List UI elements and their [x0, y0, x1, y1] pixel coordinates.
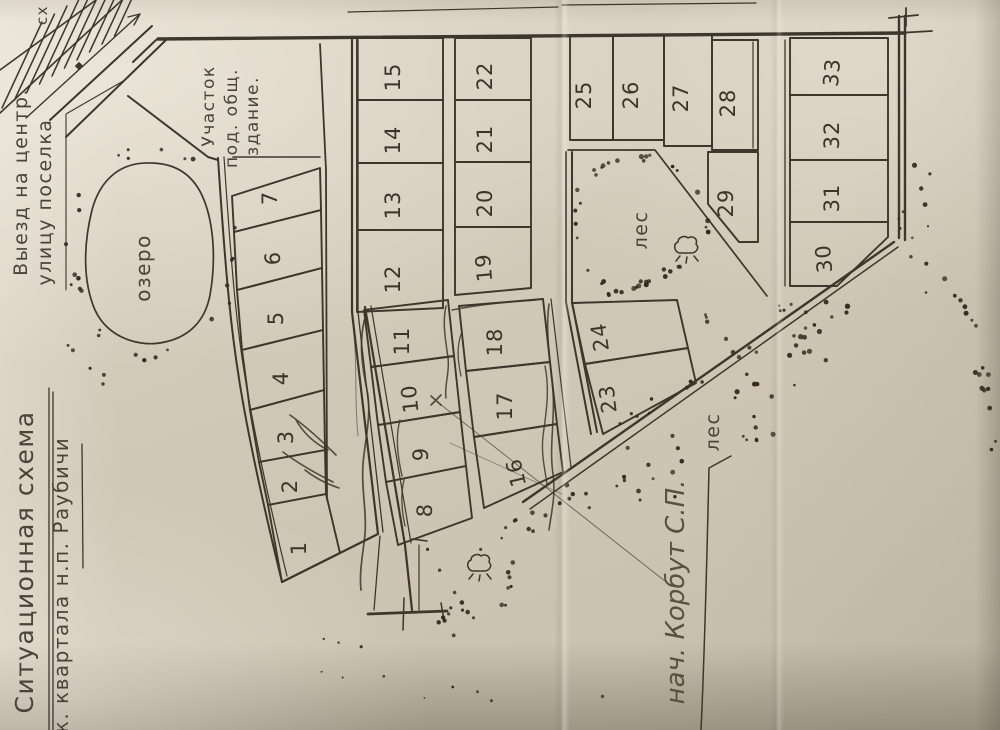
plot-8-number: 8	[413, 503, 437, 517]
plot-9-number: 9	[409, 447, 433, 461]
plot-20-number: 20	[473, 189, 497, 218]
plot-11-number: 11	[390, 327, 414, 356]
plot-25-number: 25	[572, 81, 596, 110]
plot-30-number: 30	[811, 243, 837, 274]
plot-1-boundary	[268, 494, 340, 582]
plot-26-number: 26	[619, 81, 643, 110]
tree-symbol-road-end	[468, 555, 491, 581]
exit-label-leader	[66, 80, 125, 290]
scanned-site-plan-photo: 1234567891011121314151617181920212223242…	[0, 0, 1000, 730]
boundary-top-left-seg	[133, 40, 156, 62]
plot-21-number: 21	[473, 125, 497, 154]
plot-32-number: 32	[820, 121, 844, 150]
title-line1: Ситуационная схема	[10, 410, 39, 713]
plot-6-number: 6	[261, 251, 285, 265]
forest-label-upper: лес	[630, 211, 652, 250]
plot-4-number: 4	[269, 371, 293, 385]
public-building-label-line2: под. общ.	[222, 68, 242, 168]
plot-29-number: 29	[714, 189, 738, 218]
plot-23-number: 23	[594, 383, 621, 414]
street-dead-end-stub	[374, 536, 380, 610]
forest-label-lower: лес	[702, 413, 724, 452]
plot-24-number: 24	[586, 321, 614, 353]
signature-label: нач. Корбут С.П.	[661, 480, 691, 705]
plot-22-number: 22	[473, 62, 497, 91]
edge-fragment-label: сх	[33, 5, 51, 25]
main-road-top-outer-line	[348, 3, 756, 12]
plot-15-number: 15	[381, 63, 405, 92]
plot-13-number: 13	[381, 191, 405, 220]
site-plan-map: 1234567891011121314151617181920212223242…	[0, 0, 1000, 730]
plot-33-number: 33	[819, 57, 845, 88]
plot-28-number: 28	[716, 89, 740, 118]
lake-label: озеро	[131, 234, 155, 302]
plot-1-number: 1	[287, 541, 311, 555]
plot-7-number: 7	[258, 191, 282, 205]
plot-parcels: 1234567891011121314151617181920212223242…	[232, 35, 888, 582]
exit-road-label-line2: улицу поселка	[34, 119, 56, 286]
road-diagonal-second-line	[530, 247, 898, 509]
plot-14-number: 14	[381, 126, 405, 155]
plot-19-number: 19	[471, 252, 497, 283]
plot-12-number: 12	[381, 265, 405, 294]
plot-18-number: 18	[483, 328, 507, 357]
exit-road-label-line1: Выезд на центр.	[10, 88, 32, 276]
public-building-label-line1: Участок	[199, 65, 219, 146]
street-dead-end-bar	[368, 611, 447, 614]
public-building-label-line3: здание.	[243, 76, 263, 156]
title-line2: ж. квартала н.п. Раубичи	[49, 437, 73, 730]
plot-5-number: 5	[264, 311, 288, 325]
plot-31-number: 31	[820, 184, 844, 213]
pen-mark-plot-18-left	[458, 332, 462, 376]
plot-17-number: 17	[493, 392, 517, 421]
tree-symbol-forest	[675, 237, 698, 263]
plot-10-number: 10	[397, 383, 424, 414]
plot-2-number: 2	[278, 479, 302, 493]
plot-30-boundary	[790, 222, 888, 286]
embankment-diamond-mark	[75, 62, 83, 70]
signature-underline	[701, 456, 731, 730]
road-right-vertical	[899, 16, 905, 240]
plot-27-number: 27	[669, 84, 693, 113]
plot-3-number: 3	[274, 430, 298, 444]
